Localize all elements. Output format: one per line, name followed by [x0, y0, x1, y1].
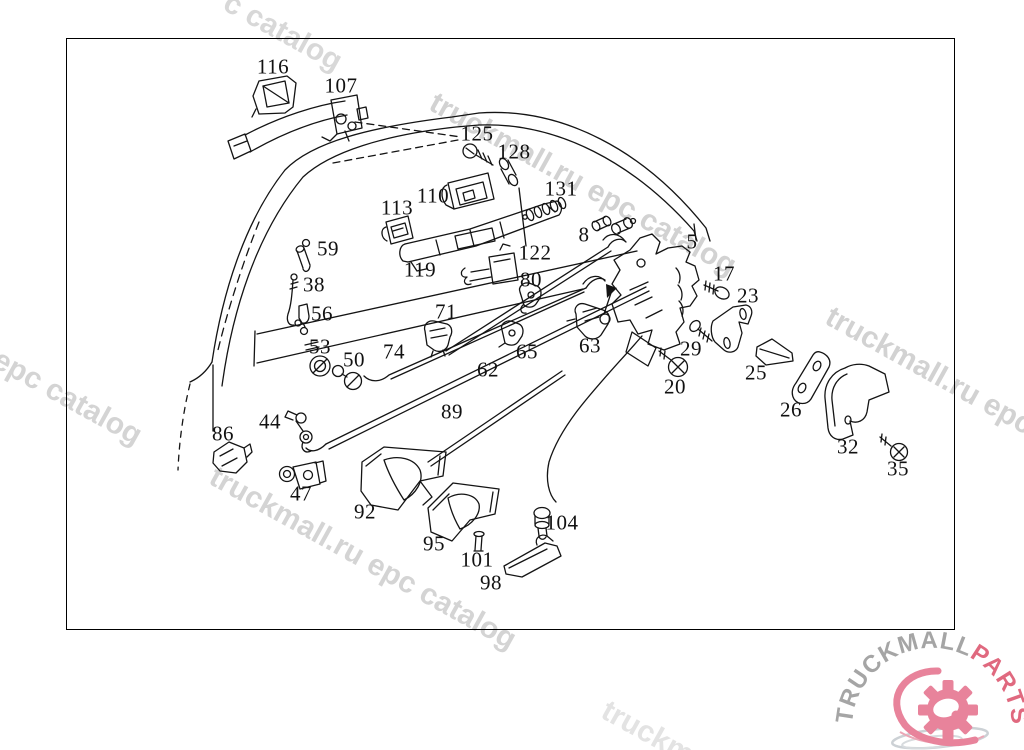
part-label-110[interactable]: 110: [417, 184, 449, 209]
part-label-20[interactable]: 20: [664, 375, 686, 400]
part-label-23[interactable]: 23: [737, 284, 759, 309]
part-label-59[interactable]: 59: [317, 237, 339, 262]
logo-swoosh: [897, 671, 975, 743]
part-label-119[interactable]: 119: [404, 258, 436, 283]
part-label-56[interactable]: 56: [311, 302, 333, 327]
part-label-5[interactable]: 5: [687, 230, 698, 255]
logo-swirls: [891, 724, 988, 750]
part-label-65[interactable]: 65: [516, 340, 538, 365]
part-label-101[interactable]: 101: [461, 548, 494, 573]
part-label-86[interactable]: 86: [212, 422, 234, 447]
part-label-17[interactable]: 17: [713, 262, 735, 287]
logo-brand-accent-text: PARTS: [966, 639, 1024, 726]
part-label-35[interactable]: 35: [887, 457, 909, 482]
part-label-107[interactable]: 107: [325, 74, 358, 99]
watermark-text-6: truckmall.ru: [596, 694, 762, 750]
part-label-8[interactable]: 8: [579, 223, 590, 248]
part-label-63[interactable]: 63: [579, 334, 601, 359]
part-label-32[interactable]: 32: [837, 435, 859, 460]
part-label-104[interactable]: 104: [546, 511, 579, 536]
part-label-53[interactable]: 53: [309, 335, 331, 360]
part-label-29[interactable]: 29: [680, 337, 702, 362]
part-label-116[interactable]: 116: [257, 55, 289, 80]
part-label-26[interactable]: 26: [780, 398, 802, 423]
part-label-38[interactable]: 38: [303, 273, 325, 298]
part-label-128[interactable]: 128: [498, 140, 531, 165]
part-label-47[interactable]: 47: [290, 482, 312, 507]
part-label-25[interactable]: 25: [745, 361, 767, 386]
logo-arc-text: TRUCKMALLPARTS: [831, 627, 1024, 726]
part-label-50[interactable]: 50: [343, 348, 365, 373]
part-label-125[interactable]: 125: [461, 122, 494, 147]
part-label-113[interactable]: 113: [381, 196, 413, 221]
gear-icon: [918, 680, 978, 740]
logo-brand-text: TRUCKMALL: [831, 627, 977, 725]
part-label-89[interactable]: 89: [441, 400, 463, 425]
part-label-71[interactable]: 71: [435, 300, 457, 325]
part-label-80[interactable]: 80: [520, 268, 542, 293]
part-label-98[interactable]: 98: [480, 571, 502, 596]
part-label-74[interactable]: 74: [383, 340, 405, 365]
part-label-131[interactable]: 131: [545, 177, 578, 202]
epc-diagram-page: c catalogtruckmall.ru epc catalogtruckma…: [0, 0, 1024, 750]
part-label-44[interactable]: 44: [259, 410, 281, 435]
part-label-62[interactable]: 62: [477, 358, 499, 383]
part-label-122[interactable]: 122: [519, 241, 552, 266]
part-label-92[interactable]: 92: [354, 500, 376, 525]
part-label-95[interactable]: 95: [423, 532, 445, 557]
diagram-border-box: [66, 38, 955, 630]
